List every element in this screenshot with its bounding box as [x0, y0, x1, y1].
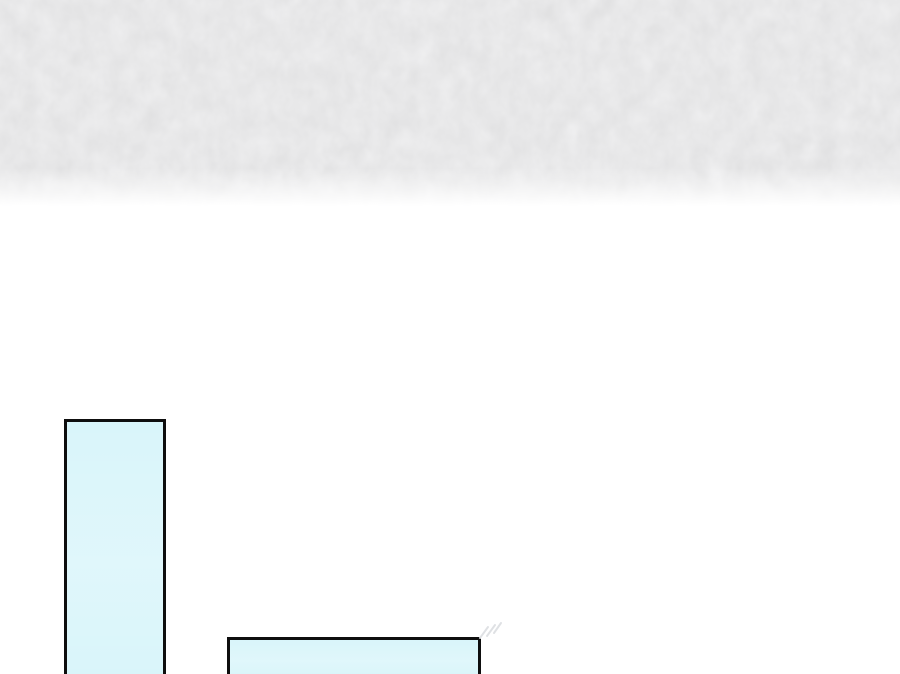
paper-texture-band [0, 0, 900, 207]
paper-noise-texture [0, 0, 900, 207]
comic-page [0, 0, 900, 674]
comic-panel-tall [64, 419, 166, 674]
comic-panel-wide [227, 637, 481, 674]
